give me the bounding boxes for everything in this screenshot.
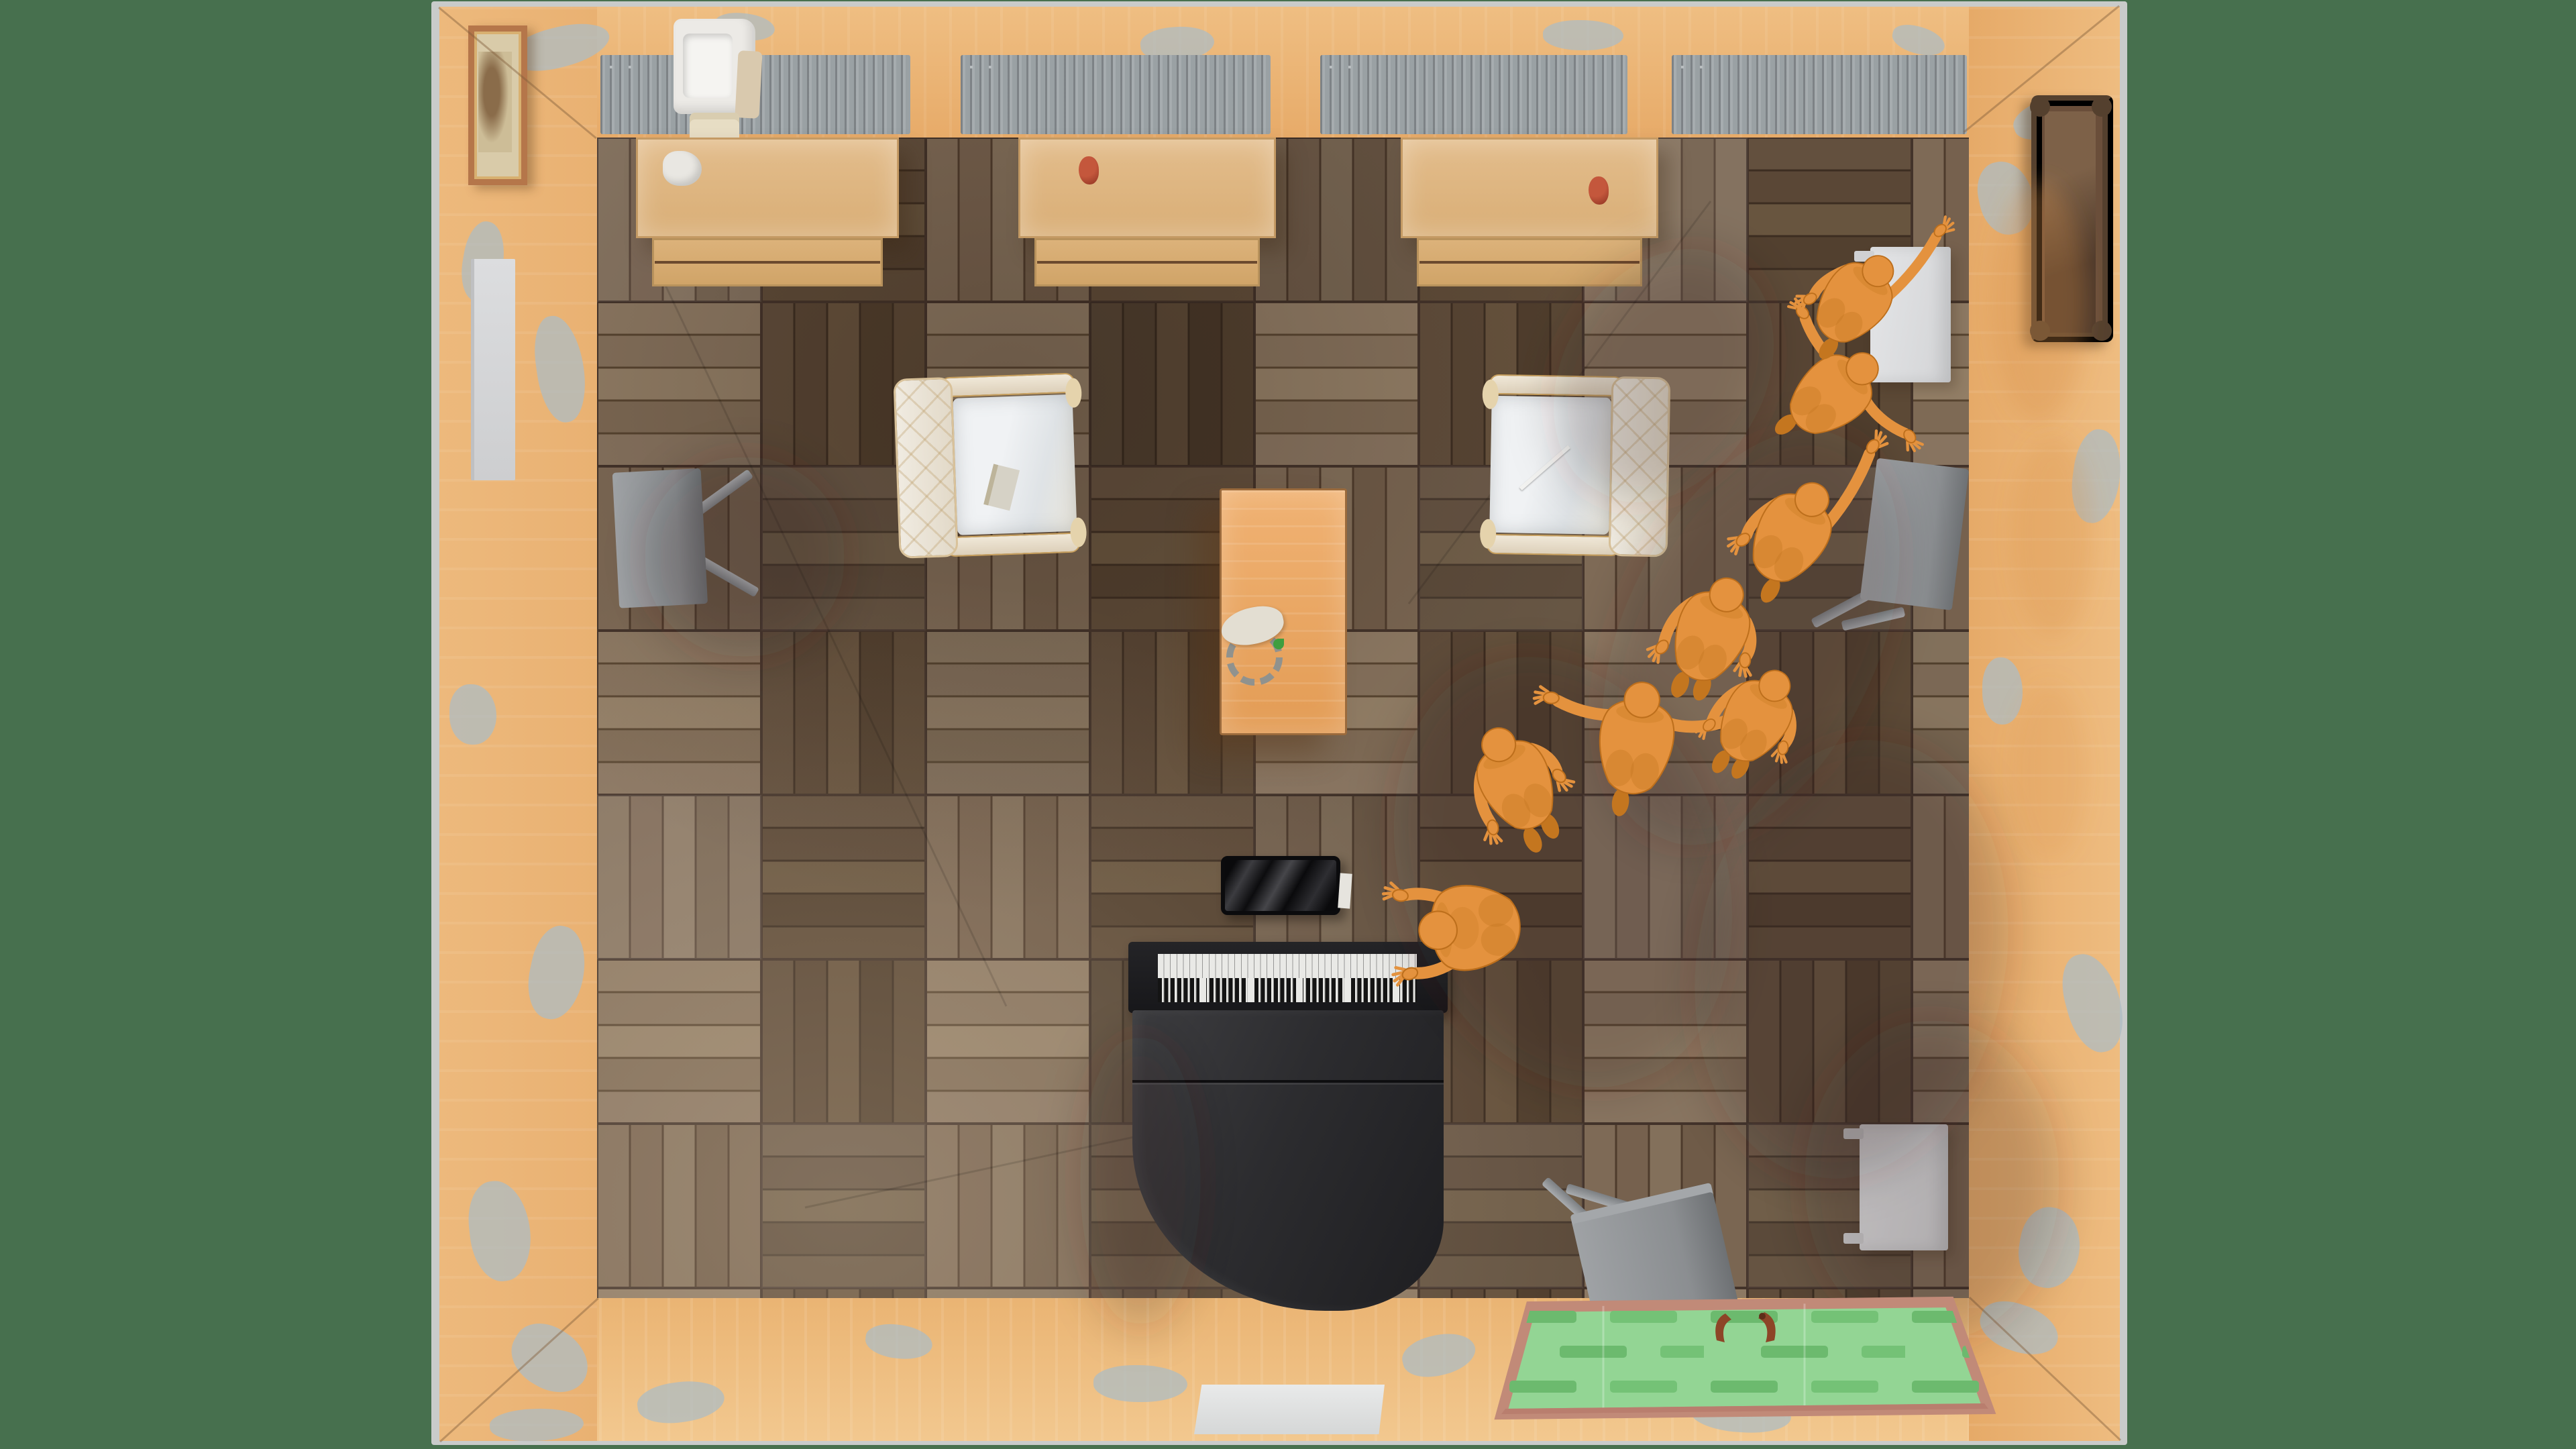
- piano-black-keys: [1158, 978, 1417, 1002]
- chair-leg: [1841, 607, 1905, 631]
- basket-leaf: [1273, 639, 1284, 649]
- armrest: [1487, 534, 1621, 556]
- red-vase: [1079, 156, 1099, 184]
- chair-backrest: [1570, 1183, 1738, 1336]
- white-side-table: [1870, 247, 1951, 382]
- armrest: [1489, 374, 1623, 396]
- drawer-slit: [1037, 261, 1257, 264]
- gray-folding-chair: [612, 464, 794, 613]
- chair-back-cushion: [1609, 376, 1671, 557]
- chair-backrest: [1860, 458, 1970, 610]
- dresser: [1401, 138, 1658, 286]
- white-cloth: [663, 151, 702, 186]
- simulation-viewport[interactable]: [0, 0, 2576, 1449]
- chair-seat: [953, 394, 1077, 535]
- armchair: [1480, 374, 1671, 557]
- drawer-slit: [655, 261, 880, 264]
- dresser: [636, 138, 899, 286]
- piano-lid-seam: [1132, 1080, 1444, 1083]
- gray-folding-chair: [1828, 455, 1996, 646]
- red-vase: [1589, 176, 1609, 205]
- dresser-top: [1018, 138, 1276, 238]
- dresser-top: [1401, 138, 1658, 238]
- dresser: [1018, 138, 1276, 286]
- table-leg: [1843, 1128, 1864, 1139]
- table-leg: [1854, 366, 1874, 377]
- white-side-table: [1860, 1124, 1948, 1250]
- sheet-music: [1338, 873, 1352, 908]
- chair-backrest: [612, 468, 708, 608]
- armchair: [893, 372, 1087, 559]
- drawer-slit: [1419, 261, 1640, 264]
- chair-back-cushion: [893, 377, 958, 559]
- piano-bench: [1221, 856, 1340, 915]
- chair-front-trim: [1065, 378, 1083, 408]
- armrest: [940, 373, 1075, 398]
- chair-front-trim: [1070, 517, 1087, 547]
- table-leg: [1854, 251, 1874, 262]
- table-leg: [1843, 1233, 1864, 1244]
